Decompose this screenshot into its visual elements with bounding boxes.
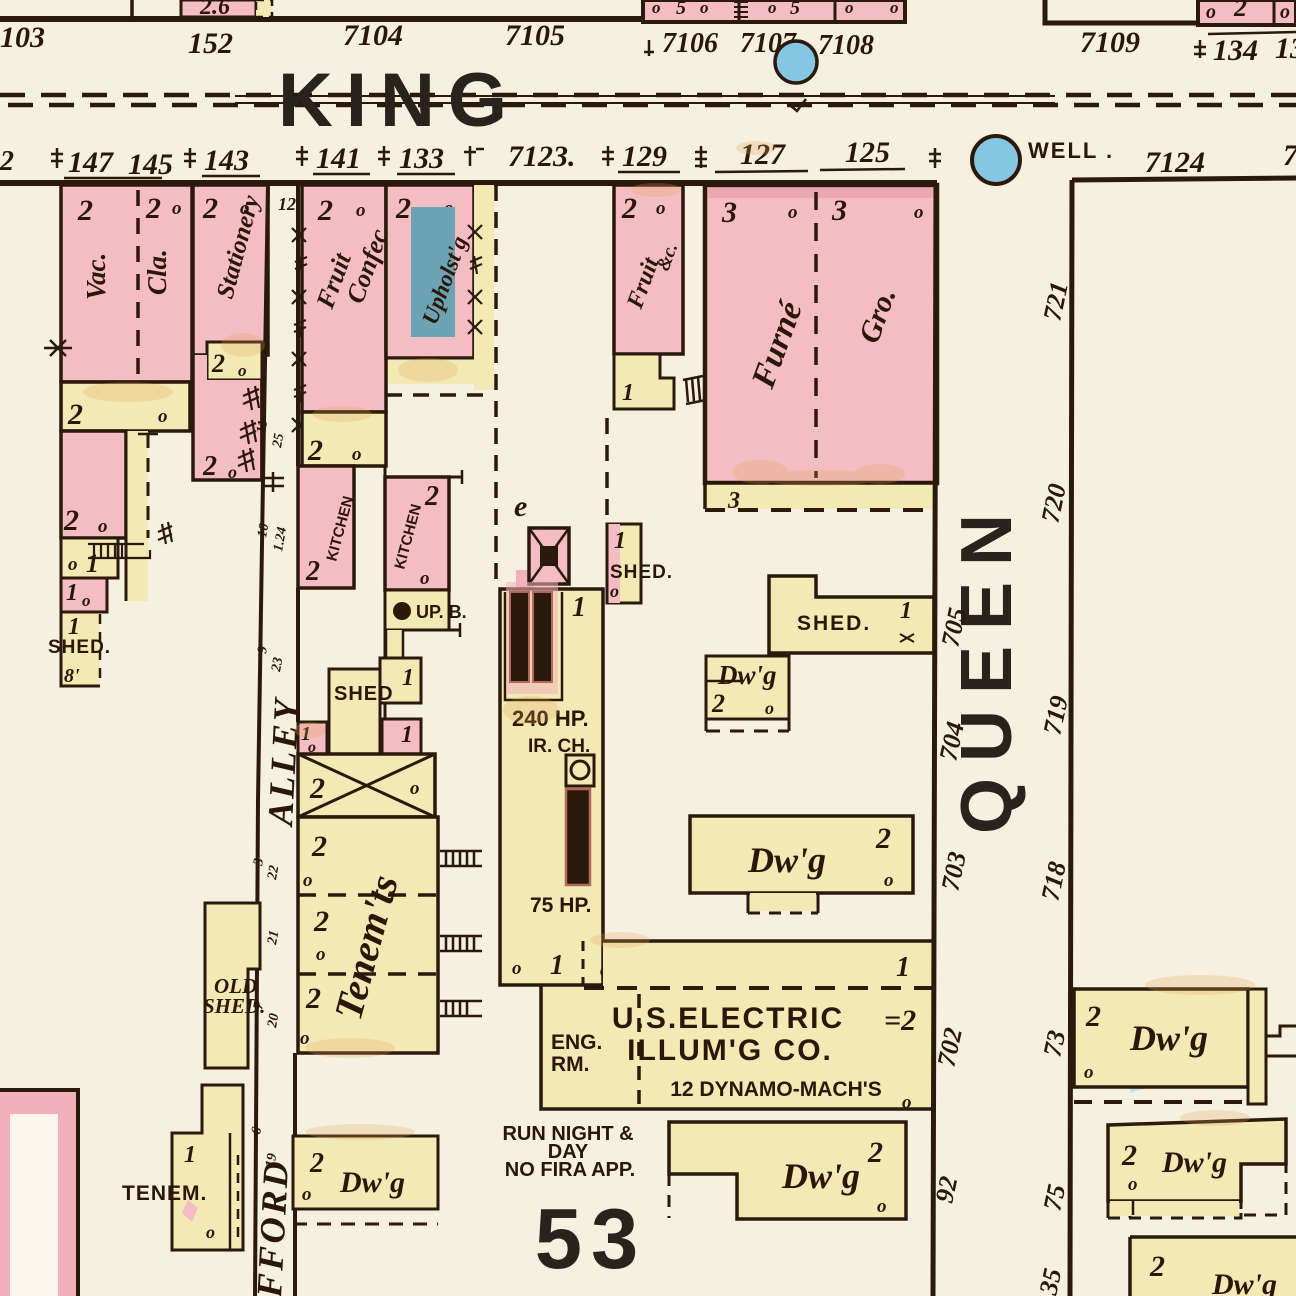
svg-text:Dw'g: Dw'g: [339, 1166, 405, 1199]
svg-text:FFORD: FFORD: [249, 1157, 296, 1296]
svg-text:141: 141: [316, 142, 361, 175]
svg-text:o: o: [700, 0, 709, 17]
svg-text:2: 2: [875, 822, 891, 855]
svg-text:2: 2: [211, 349, 225, 378]
svg-text:143: 143: [204, 144, 249, 177]
svg-text:o: o: [845, 0, 854, 17]
svg-text:2: 2: [202, 451, 217, 482]
svg-text:2: 2: [63, 504, 79, 537]
svg-text:2: 2: [305, 556, 320, 587]
svg-text:75 HP.: 75 HP.: [530, 894, 592, 917]
svg-text:o: o: [420, 568, 430, 589]
svg-text:145: 145: [128, 148, 173, 181]
svg-text:2: 2: [313, 905, 329, 938]
svg-text:3: 3: [721, 196, 737, 229]
svg-text:2: 2: [67, 398, 83, 431]
svg-text:12 DYNAMO-MACH'S: 12 DYNAMO-MACH'S: [670, 1078, 882, 1101]
svg-text:20: 20: [265, 1012, 282, 1029]
svg-text:2: 2: [305, 982, 321, 1015]
svg-text:o: o: [1128, 1174, 1138, 1195]
svg-text:o: o: [206, 1222, 215, 1242]
svg-text:o: o: [302, 1184, 312, 1205]
svg-text:2: 2: [621, 192, 637, 225]
svg-text:8': 8': [64, 665, 80, 687]
svg-text:o: o: [352, 444, 362, 465]
svg-text:1: 1: [550, 950, 564, 981]
svg-text:o: o: [1280, 1, 1290, 23]
svg-text:2: 2: [867, 1136, 883, 1169]
svg-text:Dw'g: Dw'g: [781, 1156, 860, 1196]
svg-text:o: o: [914, 202, 924, 223]
svg-text:=2: =2: [884, 1004, 916, 1037]
svg-text:o: o: [303, 870, 313, 891]
svg-text:2: 2: [77, 194, 93, 227]
svg-text:SHED.: SHED.: [203, 994, 265, 1018]
svg-text:1: 1: [622, 380, 634, 406]
svg-text:3: 3: [831, 194, 847, 227]
svg-text:1: 1: [614, 528, 626, 554]
svg-text:NO FIRA APP.: NO FIRA APP.: [505, 1159, 635, 1181]
svg-text:Dw'g: Dw'g: [1161, 1146, 1227, 1179]
svg-text:o: o: [902, 1092, 912, 1113]
svg-text:5: 5: [676, 0, 686, 19]
svg-text:o: o: [1206, 1, 1216, 23]
svg-text:Dw'g: Dw'g: [747, 840, 826, 880]
svg-text:1: 1: [896, 952, 910, 983]
svg-text:53: 53: [535, 1192, 648, 1287]
svg-text:134: 134: [1213, 34, 1258, 67]
svg-text:o: o: [884, 870, 894, 891]
svg-text:WELL .: WELL .: [1028, 138, 1114, 163]
svg-text:125: 125: [845, 136, 890, 169]
svg-text:2: 2: [1121, 1139, 1137, 1172]
svg-text:UP. B.: UP. B.: [416, 602, 467, 622]
svg-text:o: o: [512, 958, 522, 979]
svg-text:10: 10: [255, 522, 272, 538]
svg-text:o: o: [68, 554, 78, 575]
svg-text:o: o: [228, 462, 237, 482]
svg-text:2: 2: [309, 772, 325, 805]
svg-text:1: 1: [900, 598, 912, 624]
svg-text:o: o: [765, 698, 774, 718]
svg-text:103: 103: [0, 21, 45, 54]
svg-text:o: o: [238, 361, 247, 380]
svg-text:2: 2: [145, 192, 161, 225]
svg-text:25: 25: [270, 432, 287, 449]
svg-text:e: e: [514, 490, 527, 523]
svg-text:U.S.ELECTRIC: U.S.ELECTRIC: [612, 1002, 844, 1035]
svg-text:SHED: SHED: [334, 683, 394, 705]
svg-text:Vac.: Vac.: [81, 253, 111, 300]
svg-text:o: o: [82, 591, 91, 610]
svg-text:o: o: [158, 406, 168, 427]
svg-text:SHED.: SHED.: [797, 612, 871, 635]
svg-text:SHED.: SHED.: [610, 562, 673, 583]
svg-text:2: 2: [317, 194, 333, 227]
svg-text:KING: KING: [278, 58, 520, 143]
svg-text:11: 11: [254, 419, 271, 435]
svg-text:o: o: [768, 0, 777, 17]
svg-text:2: 2: [1149, 1250, 1165, 1283]
svg-text:RM.: RM.: [551, 1053, 590, 1076]
svg-text:o: o: [316, 944, 326, 965]
svg-text:ALLEY: ALLEY: [260, 695, 307, 828]
svg-text:2: 2: [307, 434, 323, 467]
svg-text:1: 1: [401, 722, 413, 748]
svg-text:o: o: [1084, 1062, 1094, 1083]
svg-text:1: 1: [572, 592, 586, 623]
svg-text:o: o: [656, 198, 666, 219]
svg-text:Dw'g: Dw'g: [1129, 1018, 1208, 1058]
svg-text:7123.: 7123.: [508, 140, 576, 173]
svg-text:o: o: [610, 581, 619, 601]
svg-text:1: 1: [402, 665, 414, 691]
svg-text:o: o: [172, 198, 182, 219]
svg-text:o: o: [410, 778, 420, 799]
svg-text:147: 147: [68, 146, 114, 179]
svg-text:19: 19: [263, 1152, 280, 1168]
svg-text:23: 23: [269, 656, 286, 673]
svg-text:129: 129: [622, 140, 667, 173]
svg-text:o: o: [890, 0, 899, 17]
svg-text:2: 2: [395, 192, 411, 225]
svg-text:TENEM.: TENEM.: [122, 1182, 207, 1205]
svg-text:7124: 7124: [1145, 146, 1205, 179]
svg-text:Dw'g: Dw'g: [1211, 1268, 1277, 1296]
svg-text:7109: 7109: [1080, 26, 1140, 59]
svg-text:2: 2: [711, 689, 725, 718]
svg-text:2: 2: [424, 481, 439, 512]
svg-text:o: o: [356, 200, 366, 221]
svg-text:21: 21: [265, 929, 282, 946]
svg-text:2: 2: [1085, 1000, 1101, 1033]
svg-text:SHED.: SHED.: [48, 637, 111, 658]
svg-text:2: 2: [311, 830, 327, 863]
svg-text:2: 2: [309, 1148, 324, 1179]
svg-text:7: 7: [1283, 139, 1296, 172]
svg-text:1: 1: [66, 580, 78, 606]
svg-text:o: o: [788, 202, 798, 223]
svg-text:2: 2: [0, 146, 14, 177]
svg-text:5: 5: [790, 0, 800, 19]
svg-text:12: 12: [278, 194, 296, 214]
svg-text:ENG.: ENG.: [551, 1031, 602, 1054]
svg-text:1: 1: [86, 549, 99, 578]
svg-text:7105: 7105: [505, 19, 565, 52]
svg-text:7106: 7106: [662, 28, 718, 59]
svg-text:133: 133: [399, 142, 444, 175]
svg-text:2.6: 2.6: [199, 0, 230, 20]
svg-text:Dw'g: Dw'g: [717, 660, 777, 690]
svg-text:22: 22: [265, 864, 282, 881]
svg-text:QUEEN: QUEEN: [947, 498, 1027, 834]
svg-text:1: 1: [184, 1142, 196, 1168]
svg-text:2: 2: [202, 192, 218, 225]
svg-text:7104: 7104: [343, 19, 403, 52]
svg-text:o: o: [652, 0, 661, 17]
svg-text:Cla.: Cla.: [142, 249, 172, 295]
svg-text:o: o: [877, 1196, 887, 1217]
svg-text:7108: 7108: [818, 30, 874, 61]
svg-text:ILLUM'G CO.: ILLUM'G CO.: [627, 1034, 833, 1067]
svg-text:13: 13: [1275, 32, 1296, 65]
svg-text:152: 152: [188, 27, 233, 60]
svg-text:2: 2: [1233, 0, 1247, 22]
svg-text:o: o: [98, 516, 108, 537]
